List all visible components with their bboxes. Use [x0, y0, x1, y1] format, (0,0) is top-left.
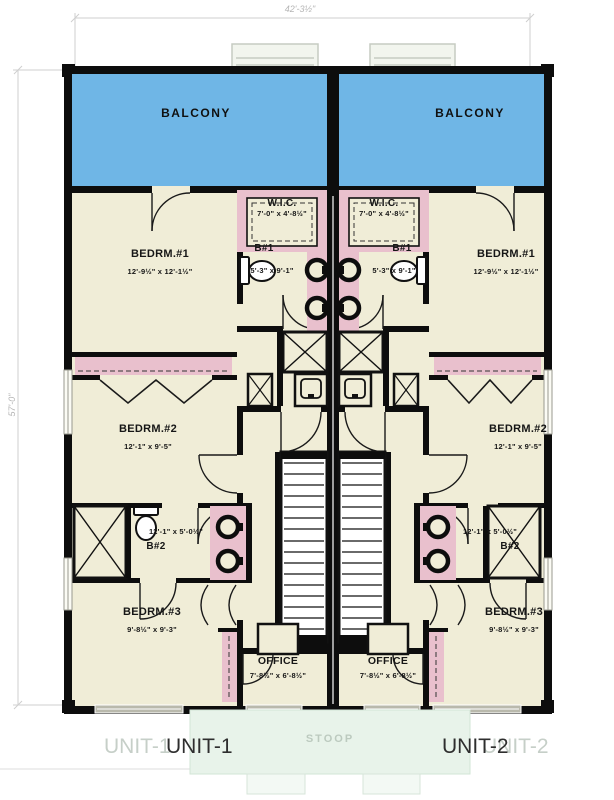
bedrm1-label-unit1: BEDRM.#1	[131, 248, 189, 260]
balcony-label-unit2: BALCONY	[435, 106, 505, 120]
office-dims-unit2: 7'-8½" x 6'-8½"	[360, 671, 416, 680]
unit1-label-shadow: UNIT-1	[104, 735, 171, 759]
floor-plan-page: 42'-3½" 57'-0" BALCONY W.I.C. 7'-0" x 4'…	[0, 0, 614, 800]
wic-dims-unit1: 7'-0" x 4'-8½"	[257, 209, 307, 218]
floorplan-drawing	[0, 0, 614, 800]
unit2-label: UNIT-2	[442, 735, 509, 759]
bedrm1-label-unit2: BEDRM.#1	[477, 248, 535, 260]
bedrm2-dims-unit1: 12'-1" x 9'-5"	[124, 442, 172, 451]
bedrm3-dims-unit1: 9'-8½" x 9'-3"	[127, 625, 177, 634]
bath2-label-unit1: B#2	[146, 541, 165, 552]
bath1-label-unit2: B#1	[392, 243, 411, 254]
bedrm1-dims-unit1: 12'-9½" x 12'-1½"	[128, 267, 193, 276]
dimension-left-label: 57'-0"	[7, 394, 17, 417]
bath2-label-unit2: B#2	[500, 541, 519, 552]
wic-dims-unit2: 7'-0" x 4'-8½"	[359, 209, 409, 218]
bedrm3-label-unit1: BEDRM.#3	[123, 606, 181, 618]
bath1-dims-unit1: 5'-3" x 9'-1"	[250, 266, 293, 275]
bedrm2-label-unit2: BEDRM.#2	[489, 423, 547, 435]
dimension-top-label: 42'-3½"	[285, 4, 315, 14]
bedrm1-dims-unit2: 12'-9½" x 12'-1½"	[474, 267, 539, 276]
bath2-dims-unit1: 12'-1" x 5'-0½"	[149, 527, 203, 536]
bedrm2-label-unit1: BEDRM.#2	[119, 423, 177, 435]
bedrm3-label-unit2: BEDRM.#3	[485, 606, 543, 618]
bedrm2-dims-unit2: 12'-1" x 9'-5"	[494, 442, 542, 451]
bath1-label-unit1: B#1	[254, 243, 273, 254]
bedrm3-dims-unit2: 9'-8½" x 9'-3"	[489, 625, 539, 634]
unit1-label: UNIT-1	[166, 735, 233, 759]
balcony-label-unit1: BALCONY	[161, 106, 231, 120]
stoop-label: STOOP	[306, 733, 354, 745]
shower-icon	[74, 506, 126, 578]
office-dims-unit1: 7'-8½" x 6'-8½"	[250, 671, 306, 680]
office-label-unit2: OFFICE	[368, 655, 408, 667]
office-label-unit1: OFFICE	[258, 655, 298, 667]
bath2-dims-unit2: 12'-1" x 5'-0½"	[463, 527, 517, 536]
wic-label-unit2: W.I.C.	[369, 198, 398, 209]
wic-label-unit1: W.I.C.	[267, 198, 296, 209]
bath1-dims-unit2: 5'-3" x 9'-1"	[372, 266, 415, 275]
